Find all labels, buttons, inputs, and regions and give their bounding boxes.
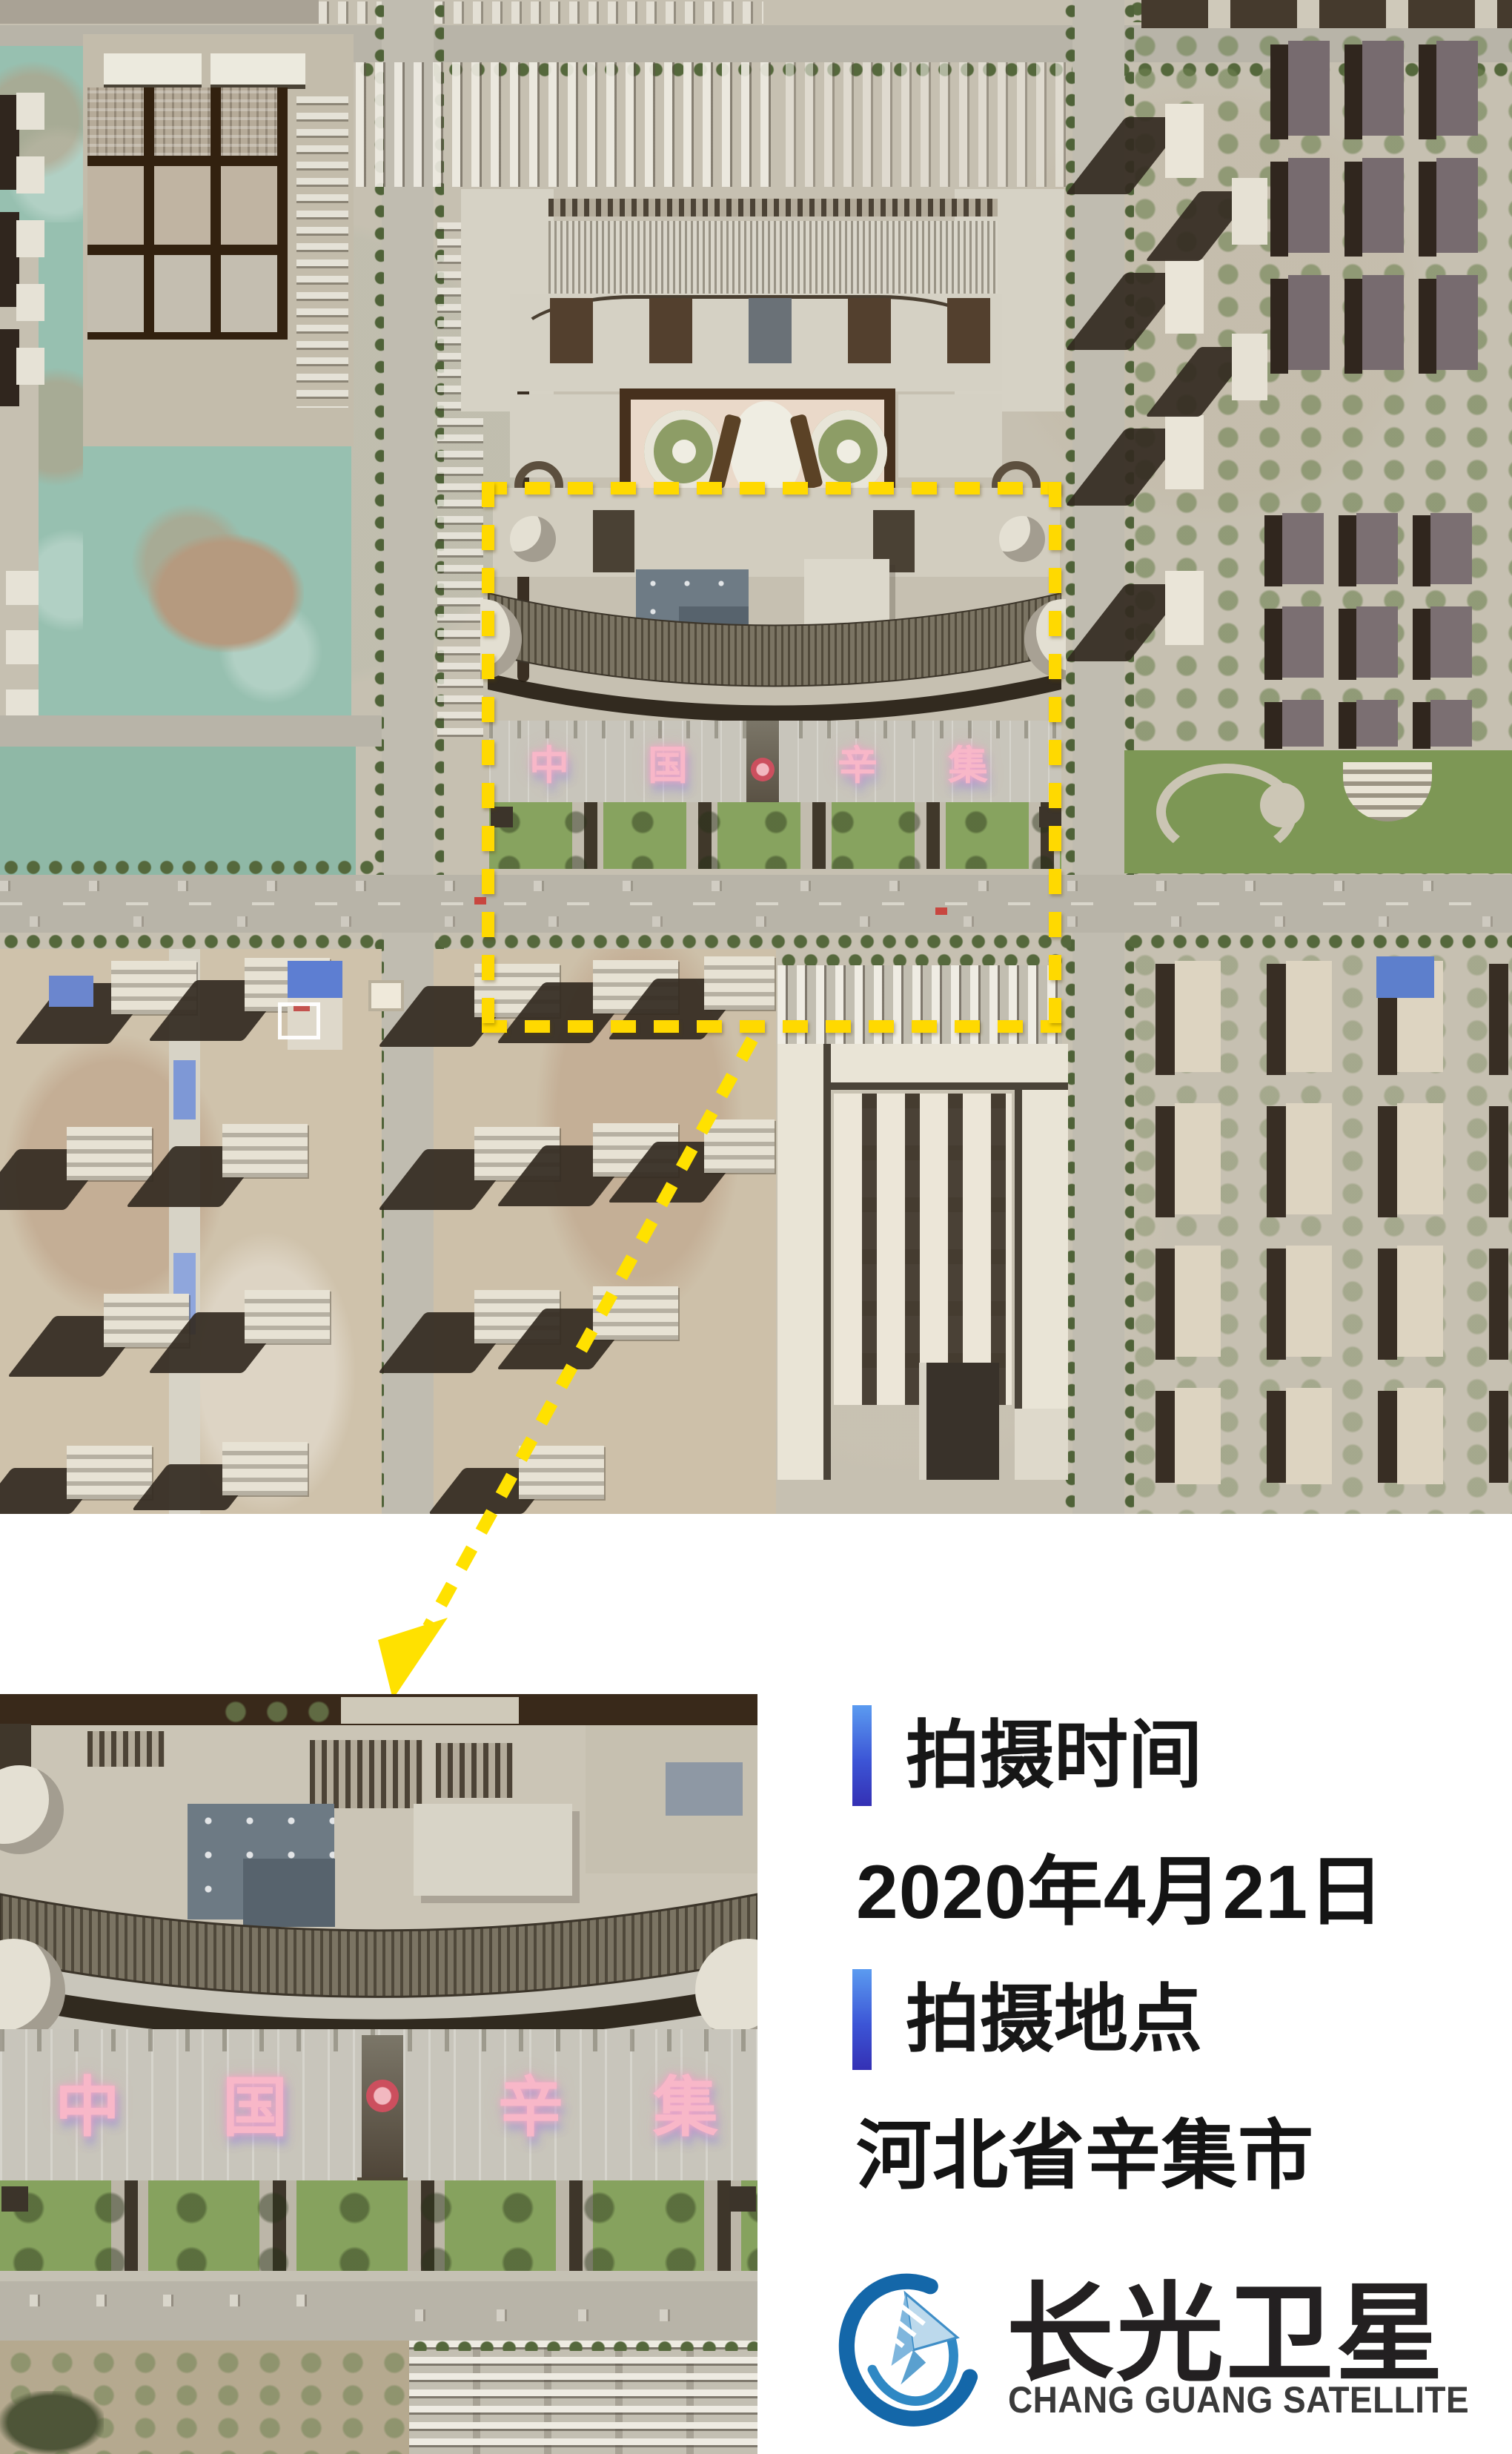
road-traffic bbox=[415, 2309, 712, 2321]
garden-dot bbox=[672, 440, 696, 463]
monument-red-dot bbox=[751, 758, 775, 781]
tower bbox=[1232, 334, 1267, 400]
highlight-rect-top bbox=[482, 482, 1061, 495]
blue-roof-building bbox=[288, 961, 342, 998]
tree-row bbox=[0, 933, 382, 949]
tree-row bbox=[409, 2339, 757, 2351]
slab-column bbox=[1356, 513, 1398, 747]
slab-shadow bbox=[1264, 515, 1282, 749]
apartment-column bbox=[16, 93, 44, 409]
city-block bbox=[0, 0, 319, 24]
gray-roof bbox=[666, 1762, 743, 1816]
info-value-date: 2020年4月21日 bbox=[856, 1851, 1385, 1934]
slab-column bbox=[1436, 41, 1478, 389]
slab-shadow bbox=[1419, 44, 1436, 393]
roof-block bbox=[848, 298, 891, 363]
complex-building-right bbox=[1015, 1090, 1068, 1409]
tower bbox=[1165, 571, 1204, 645]
blue-roof-building bbox=[1376, 956, 1434, 998]
garden-dot bbox=[837, 440, 861, 463]
tower bbox=[1232, 178, 1267, 245]
secondary-highlight-box bbox=[278, 1002, 320, 1039]
roof-block bbox=[649, 298, 692, 363]
company-name-zh: 长光卫星 bbox=[1007, 2281, 1445, 2388]
sidewalk bbox=[0, 2271, 757, 2281]
info-value-location: 河北省辛集市 bbox=[856, 2114, 1314, 2197]
roof-vents bbox=[548, 199, 998, 216]
complex-wing bbox=[1015, 1409, 1068, 1480]
station-main-roof bbox=[488, 593, 1061, 741]
road-vertical-left bbox=[382, 0, 434, 1514]
road-lane-marks bbox=[0, 902, 1512, 905]
ground-char-zhong: 中 bbox=[529, 746, 569, 786]
road-traffic bbox=[30, 916, 1512, 927]
road-vertical-right bbox=[1072, 0, 1124, 1514]
slab-shadow bbox=[1344, 44, 1362, 393]
slab-column bbox=[1282, 513, 1324, 747]
blue-tarp bbox=[173, 1060, 196, 1119]
tree-row bbox=[434, 933, 1071, 949]
road-traffic bbox=[30, 2295, 341, 2306]
roof-block bbox=[593, 510, 634, 572]
building-slab bbox=[67, 1446, 152, 1499]
warehouse-shed bbox=[104, 53, 202, 89]
construction-ground bbox=[39, 222, 83, 734]
construction-ground bbox=[0, 746, 356, 875]
slab-column bbox=[1175, 961, 1221, 1484]
complex-building-left bbox=[777, 1044, 831, 1480]
building-slab bbox=[704, 1119, 775, 1173]
highlight-rect-right bbox=[1049, 482, 1061, 1033]
ground-char-xin: 辛 bbox=[838, 746, 878, 786]
building-slab bbox=[222, 1124, 308, 1177]
building-slab bbox=[222, 1442, 308, 1495]
satellite-image-inset: 中 国 辛 集 bbox=[0, 1694, 757, 2454]
construction-ground bbox=[434, 949, 776, 1514]
info-panel: 拍摄时间 2020年4月21日 拍摄地点 河北省辛集市 长光卫星 CHANG G… bbox=[815, 1683, 1512, 2454]
building-slab bbox=[245, 1290, 330, 1343]
slab-shadow bbox=[1413, 515, 1430, 749]
hedge-row bbox=[0, 2180, 757, 2271]
building-band bbox=[1141, 0, 1512, 28]
tower bbox=[1165, 259, 1204, 334]
satellite-image-main: 中 国 辛 集 bbox=[0, 0, 1512, 1514]
light-box-annotation-bg bbox=[368, 980, 404, 1011]
slab-column bbox=[1288, 41, 1330, 389]
road-minor-left bbox=[0, 715, 382, 747]
parking-lot bbox=[356, 62, 771, 187]
highlight-rect-bottom bbox=[482, 1020, 1061, 1033]
roof-pad-circle bbox=[999, 516, 1045, 562]
slab-shadow bbox=[1378, 964, 1397, 1483]
hedge-row bbox=[489, 802, 1061, 869]
slab-shadow bbox=[1270, 44, 1288, 393]
tower bbox=[1165, 104, 1204, 178]
building-slab bbox=[704, 956, 775, 1010]
company-logo-icon bbox=[832, 2267, 989, 2427]
ground-char-guo: 国 bbox=[648, 746, 688, 786]
warehouse-shed bbox=[210, 53, 305, 89]
complex-courtyard-units bbox=[834, 1094, 1012, 1405]
hedge-pillar bbox=[1, 2186, 28, 2212]
ground-char-zhong: 中 bbox=[55, 2075, 120, 2140]
monument-red-dot bbox=[366, 2080, 399, 2112]
roof-pad-circle bbox=[510, 516, 556, 562]
building-slab bbox=[519, 1446, 604, 1499]
accent-bar bbox=[852, 1969, 872, 2070]
poster: 中 国 辛 集 bbox=[0, 0, 1512, 2454]
tree-shadow-cluster bbox=[0, 2391, 104, 2454]
accent-bar bbox=[852, 1705, 872, 1806]
complex-building-top bbox=[831, 1044, 1068, 1090]
hedge-pillar bbox=[729, 2186, 756, 2212]
road-traffic bbox=[0, 881, 1512, 891]
ground-char-ji: 集 bbox=[653, 2075, 718, 2140]
blue-roof-building bbox=[49, 976, 93, 1007]
red-vehicle bbox=[935, 907, 947, 915]
ground-char-guo: 国 bbox=[222, 2075, 288, 2140]
parking-column bbox=[296, 96, 348, 408]
highlight-rect-left bbox=[482, 482, 494, 1033]
complex-dark-tower bbox=[919, 1363, 999, 1480]
slab-shadow bbox=[1267, 964, 1286, 1483]
roof-vents bbox=[436, 1743, 513, 1798]
parking-lot bbox=[409, 2341, 757, 2454]
roof-block bbox=[550, 298, 593, 363]
roof-vents bbox=[310, 1740, 422, 1808]
slab-column bbox=[1397, 961, 1443, 1484]
station-north-roof bbox=[548, 221, 998, 294]
station-concourse bbox=[493, 488, 1060, 577]
tower bbox=[1165, 415, 1204, 489]
tree-row bbox=[0, 859, 382, 876]
slab-column bbox=[1362, 41, 1404, 389]
parking-lot bbox=[786, 62, 1067, 187]
path-gap bbox=[341, 1697, 519, 1724]
building-slab bbox=[67, 1127, 152, 1180]
slab-shadow bbox=[1155, 964, 1175, 1483]
info-label-time: 拍摄时间 bbox=[906, 1705, 1202, 1806]
building-slab bbox=[593, 1286, 678, 1340]
slab-column bbox=[1286, 961, 1332, 1484]
warehouse-grid bbox=[87, 87, 288, 340]
roof-section bbox=[898, 394, 1002, 477]
park-plaza-circle bbox=[1260, 783, 1304, 827]
ground-char-ji: 集 bbox=[948, 746, 988, 786]
tree-row bbox=[777, 952, 1062, 965]
roof-block bbox=[749, 298, 792, 363]
roof-block bbox=[947, 298, 990, 363]
slab-shadow bbox=[1489, 964, 1508, 1483]
info-label-location: 拍摄地点 bbox=[906, 1969, 1202, 2070]
slab-column bbox=[1430, 513, 1472, 747]
slab-shadow bbox=[1339, 515, 1356, 749]
ground-char-xin: 辛 bbox=[498, 2075, 563, 2140]
dirt-patch bbox=[148, 534, 304, 652]
roof-vents bbox=[87, 1731, 165, 1767]
company-name-en: CHANG GUANG SATELLITE bbox=[1008, 2381, 1469, 2418]
tree-row bbox=[1124, 933, 1512, 949]
